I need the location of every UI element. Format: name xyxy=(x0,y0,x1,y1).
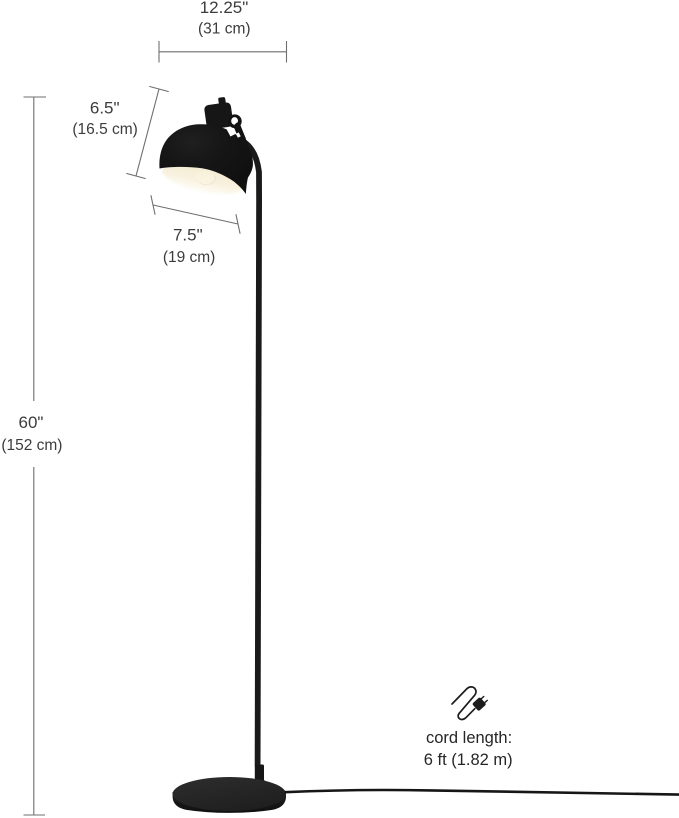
svg-text:cord length:: cord length: xyxy=(426,729,512,747)
svg-text:(16.5 cm): (16.5 cm) xyxy=(72,121,137,138)
svg-text:6.5": 6.5" xyxy=(90,99,120,118)
svg-text:12.25": 12.25" xyxy=(200,0,249,17)
svg-text:(152 cm): (152 cm) xyxy=(1,437,62,454)
svg-text:6 ft (1.82 m): 6 ft (1.82 m) xyxy=(424,751,513,769)
svg-text:(31 cm): (31 cm) xyxy=(198,20,251,37)
svg-text:(19 cm): (19 cm) xyxy=(163,249,216,266)
svg-text:60": 60" xyxy=(19,413,44,432)
svg-text:7.5": 7.5" xyxy=(173,226,203,245)
